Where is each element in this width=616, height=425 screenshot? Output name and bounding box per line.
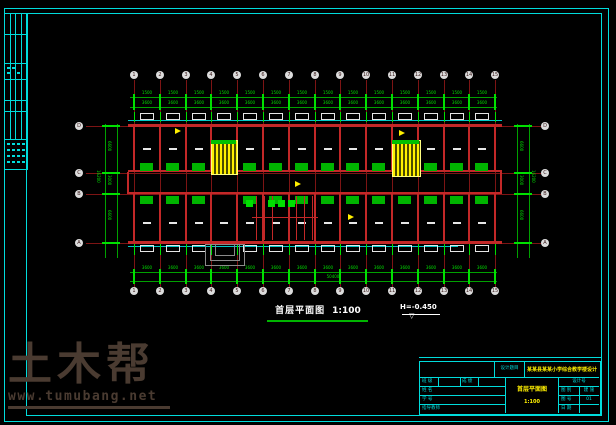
window bbox=[243, 245, 257, 252]
partition-wall bbox=[296, 196, 297, 240]
wall bbox=[443, 127, 445, 171]
staircase bbox=[392, 140, 421, 177]
toilet-fixture bbox=[268, 200, 275, 207]
wall bbox=[339, 127, 341, 171]
window-tick bbox=[315, 244, 316, 255]
dimension-tick bbox=[514, 193, 532, 195]
wall bbox=[494, 194, 496, 242]
axis-bubble: 5 bbox=[233, 287, 241, 295]
room-label bbox=[143, 222, 151, 224]
tb-project-name: 某某县某某小学综合教学楼设计 bbox=[525, 366, 599, 373]
door-fixture bbox=[321, 163, 334, 171]
dimension-text: 3600 bbox=[345, 101, 361, 105]
tb-divider bbox=[420, 386, 505, 387]
watermark-brand: 土木帮 bbox=[8, 342, 155, 388]
tb-row-label: 班 级 bbox=[422, 379, 432, 385]
dimension-text: 3600 bbox=[165, 266, 181, 270]
window-tick bbox=[160, 112, 161, 122]
wall bbox=[314, 194, 316, 242]
window bbox=[321, 245, 335, 252]
tb-right-header: 设计号 bbox=[559, 379, 599, 385]
window bbox=[192, 245, 206, 252]
window bbox=[450, 113, 464, 120]
dimension-text: 1500 bbox=[191, 91, 207, 95]
wall bbox=[185, 194, 187, 242]
caption-title: 首层平面图 bbox=[275, 306, 325, 316]
tb-row-label: 指导教师 bbox=[422, 406, 440, 412]
caption: 首层平面图1:100 bbox=[260, 303, 376, 316]
room-label bbox=[478, 148, 486, 150]
dimension-text: 3600 bbox=[397, 266, 413, 270]
level-mark-value: H=-0.450 bbox=[400, 303, 437, 311]
dimension-text: 16200 bbox=[96, 170, 100, 183]
dimension-text: 1500 bbox=[345, 91, 361, 95]
wall bbox=[494, 127, 496, 171]
window-tick bbox=[186, 112, 187, 122]
axis-bubble: 7 bbox=[285, 71, 293, 79]
dimension-tick bbox=[365, 94, 367, 110]
dimension-text: 1500 bbox=[397, 91, 413, 95]
dimension-tick bbox=[468, 269, 470, 284]
wall bbox=[133, 127, 135, 171]
axis-bubble: 13 bbox=[440, 71, 448, 79]
wall bbox=[468, 127, 470, 171]
window-tick bbox=[289, 112, 290, 122]
window-tick bbox=[469, 112, 470, 122]
window-tick bbox=[134, 112, 135, 122]
window-tick bbox=[160, 244, 161, 255]
dimension-line bbox=[529, 124, 530, 258]
dimension-tick bbox=[314, 94, 316, 110]
room-label bbox=[375, 222, 383, 224]
title-block: 设计题目 某某县某某小学综合教学楼设计 班 级 成 绩 姓 名 学 号 指导教师… bbox=[419, 357, 601, 415]
dimension-text: 3600 bbox=[474, 101, 490, 105]
dimension-text: 3600 bbox=[242, 266, 258, 270]
dimension-text: 3600 bbox=[371, 266, 387, 270]
tb-right-value: 01 bbox=[580, 397, 598, 403]
direction-arrow-icon bbox=[295, 181, 301, 187]
watermark-url: www.tumubang.net bbox=[8, 389, 157, 404]
dimension-tick bbox=[262, 94, 264, 110]
window-tick bbox=[366, 112, 367, 122]
axis-bubble: 4 bbox=[207, 287, 215, 295]
axis-bubble: 11 bbox=[388, 71, 396, 79]
dimension-text: 1500 bbox=[242, 91, 258, 95]
tb-divider bbox=[558, 404, 599, 405]
door-fixture bbox=[372, 196, 385, 204]
room-label bbox=[453, 148, 461, 150]
title-block-topline bbox=[419, 357, 601, 358]
dimension-text: 3600 bbox=[191, 101, 207, 105]
axis-bubble: 8 bbox=[311, 71, 319, 79]
door-fixture bbox=[450, 163, 463, 171]
window bbox=[398, 113, 412, 120]
room-label bbox=[143, 148, 151, 150]
tb-drawing-scale: 1:100 bbox=[506, 399, 558, 405]
window bbox=[166, 245, 180, 252]
dimension-text: 6600 bbox=[107, 210, 111, 220]
toilet-fixture bbox=[278, 200, 285, 207]
axis-bubble: B bbox=[75, 190, 83, 198]
axis-bubble: 1 bbox=[130, 287, 138, 295]
window-tick bbox=[134, 244, 135, 255]
room-label bbox=[246, 148, 254, 150]
window-tick bbox=[340, 112, 341, 122]
window bbox=[475, 113, 489, 120]
room-label bbox=[272, 222, 280, 224]
room-label bbox=[195, 222, 203, 224]
axis-bubble: 10 bbox=[362, 71, 370, 79]
dimension-tick bbox=[185, 94, 187, 110]
dimension-text: 3600 bbox=[320, 101, 336, 105]
dimension-tick bbox=[514, 172, 532, 174]
tb-row-label: 学 号 bbox=[422, 397, 432, 403]
window-tick bbox=[495, 244, 496, 255]
axis-bubble: C bbox=[541, 169, 549, 177]
staircase bbox=[211, 140, 238, 175]
window-tick bbox=[289, 244, 290, 255]
window bbox=[140, 245, 154, 252]
tb-drawing-name: 首层平面图 bbox=[506, 384, 558, 393]
dimension-tick bbox=[133, 94, 135, 110]
axis-bubble: D bbox=[541, 122, 549, 130]
axis-bubble: 15 bbox=[491, 287, 499, 295]
room-label bbox=[298, 148, 306, 150]
window bbox=[398, 245, 412, 252]
axis-bubble: B bbox=[541, 190, 549, 198]
axis-bubble: 2 bbox=[156, 287, 164, 295]
wall bbox=[288, 127, 290, 171]
window-tick bbox=[469, 244, 470, 255]
wall bbox=[262, 127, 264, 171]
wall bbox=[391, 194, 393, 242]
room-label bbox=[272, 148, 280, 150]
dimension-text: 1500 bbox=[423, 91, 439, 95]
dimension-text: 1500 bbox=[371, 91, 387, 95]
wall bbox=[133, 194, 135, 242]
door-fixture bbox=[192, 196, 205, 204]
tb-row-label: 成 绩 bbox=[462, 379, 472, 385]
tb-divider bbox=[420, 377, 599, 378]
tb-right-value: 建 施 bbox=[580, 388, 598, 394]
dimension-text: 1500 bbox=[294, 91, 310, 95]
axis-bubble: 4 bbox=[207, 71, 215, 79]
dimension-line bbox=[105, 124, 106, 258]
axis-bubble: 9 bbox=[336, 71, 344, 79]
dimension-tick bbox=[102, 242, 120, 244]
axis-bubble: 15 bbox=[491, 71, 499, 79]
dimension-tick bbox=[185, 269, 187, 284]
window-tick bbox=[263, 244, 264, 255]
axis-bubble: D bbox=[75, 122, 83, 130]
partition-wall bbox=[304, 196, 305, 240]
dimension-text: 1500 bbox=[474, 91, 490, 95]
axis-line-horizontal bbox=[86, 173, 541, 174]
dimension-tick bbox=[159, 94, 161, 110]
window-tick bbox=[392, 112, 393, 122]
axis-bubble: 3 bbox=[182, 71, 190, 79]
door-fixture bbox=[140, 163, 153, 171]
door-fixture bbox=[295, 163, 308, 171]
dimension-tick bbox=[339, 94, 341, 110]
dimension-tick bbox=[102, 193, 120, 195]
door-fixture bbox=[243, 163, 256, 171]
dimension-text: 1500 bbox=[320, 91, 336, 95]
axis-bubble: 2 bbox=[156, 71, 164, 79]
tb-divider bbox=[505, 377, 506, 413]
window-tick bbox=[418, 112, 419, 122]
dimension-text: 16200 bbox=[531, 170, 535, 183]
window bbox=[424, 113, 438, 120]
tb-divider bbox=[478, 377, 479, 386]
dimension-tick bbox=[102, 125, 120, 127]
toilet-fixture bbox=[288, 200, 295, 207]
window-tick bbox=[392, 244, 393, 255]
dimension-text: 6600 bbox=[519, 141, 523, 151]
dimension-line bbox=[117, 124, 118, 258]
wall bbox=[210, 194, 212, 242]
axis-bubble: A bbox=[541, 239, 549, 247]
window bbox=[192, 113, 206, 120]
dimension-text: 6600 bbox=[519, 210, 523, 220]
tb-right-label: 日 期 bbox=[561, 406, 571, 412]
tb-divider bbox=[420, 395, 505, 396]
dimension-text: 3600 bbox=[449, 266, 465, 270]
dimension-text: 3600 bbox=[268, 101, 284, 105]
dimension-tick bbox=[514, 125, 532, 127]
room-label bbox=[169, 148, 177, 150]
window bbox=[372, 245, 386, 252]
dimension-tick bbox=[236, 269, 238, 284]
wall bbox=[314, 127, 316, 171]
axis-bubble: 9 bbox=[336, 287, 344, 295]
tb-divider bbox=[558, 395, 599, 396]
dimension-tick bbox=[102, 172, 120, 174]
room-label bbox=[220, 222, 228, 224]
window bbox=[269, 245, 283, 252]
window-tick bbox=[211, 112, 212, 122]
dimension-tick bbox=[210, 94, 212, 110]
window bbox=[475, 245, 489, 252]
window-tick bbox=[495, 112, 496, 122]
axis-bubble: 12 bbox=[414, 71, 422, 79]
staircase-landing bbox=[392, 140, 419, 144]
axis-bubble: 11 bbox=[388, 287, 396, 295]
door-fixture bbox=[321, 196, 334, 204]
dimension-tick bbox=[468, 94, 470, 110]
wall bbox=[159, 194, 161, 242]
tb-right-label: 图 别 bbox=[561, 388, 571, 394]
window bbox=[450, 245, 464, 252]
wall bbox=[127, 172, 129, 194]
window bbox=[140, 113, 154, 120]
window bbox=[269, 113, 283, 120]
wall bbox=[468, 194, 470, 242]
dimension-tick bbox=[514, 242, 532, 244]
wall bbox=[365, 194, 367, 242]
window bbox=[321, 113, 335, 120]
dimension-tick bbox=[443, 94, 445, 110]
window-tick bbox=[418, 244, 419, 255]
cad-sheet: 1122334455667788991010111112121313141415… bbox=[0, 0, 616, 425]
dimension-text: 3600 bbox=[139, 101, 155, 105]
room-label bbox=[349, 148, 357, 150]
dimension-tick bbox=[288, 94, 290, 110]
window bbox=[243, 113, 257, 120]
room-label bbox=[246, 222, 254, 224]
tb-divider bbox=[420, 404, 505, 405]
axis-bubble: 8 bbox=[311, 287, 319, 295]
room-label bbox=[324, 148, 332, 150]
dimension-text: 3600 bbox=[371, 101, 387, 105]
tb-project-label: 设计题目 bbox=[495, 366, 524, 372]
axis-bubble: 14 bbox=[465, 71, 473, 79]
door-fixture bbox=[346, 196, 359, 204]
dimension-tick bbox=[262, 269, 264, 284]
axis-bubble: 1 bbox=[130, 71, 138, 79]
direction-arrow-icon bbox=[348, 214, 354, 220]
room-label bbox=[375, 148, 383, 150]
partition-wall bbox=[252, 217, 318, 218]
dimension-tick bbox=[236, 94, 238, 110]
direction-arrow-icon bbox=[175, 128, 181, 134]
dimension-tick bbox=[443, 269, 445, 284]
dimension-text: 3600 bbox=[474, 266, 490, 270]
dimension-tick bbox=[391, 94, 393, 110]
window bbox=[424, 245, 438, 252]
dimension-tick bbox=[417, 94, 419, 110]
direction-arrow-icon bbox=[399, 130, 405, 136]
axis-bubble: A bbox=[75, 239, 83, 247]
wall bbox=[185, 127, 187, 171]
dimension-text: 3000 bbox=[519, 175, 523, 185]
dimension-text: 3600 bbox=[191, 266, 207, 270]
door-fixture bbox=[424, 163, 437, 171]
dimension-text: 3600 bbox=[345, 266, 361, 270]
window bbox=[346, 113, 360, 120]
tb-divider bbox=[460, 377, 461, 386]
entrance-step bbox=[215, 244, 235, 256]
axis-bubble: 10 bbox=[362, 287, 370, 295]
wall bbox=[443, 194, 445, 242]
dimension-tick bbox=[494, 269, 496, 284]
wall bbox=[417, 194, 419, 242]
window bbox=[372, 113, 386, 120]
dimension-tick bbox=[494, 94, 496, 110]
tb-right-label: 图 号 bbox=[561, 397, 571, 403]
window bbox=[295, 113, 309, 120]
dimension-text: 3600 bbox=[294, 266, 310, 270]
window-tick bbox=[315, 112, 316, 122]
door-fixture bbox=[192, 163, 205, 171]
dimension-text: 3600 bbox=[139, 266, 155, 270]
window-tick bbox=[444, 112, 445, 122]
partition-wall bbox=[312, 196, 313, 240]
window-tick bbox=[366, 244, 367, 255]
window bbox=[346, 245, 360, 252]
window-tick bbox=[237, 112, 238, 122]
axis-bubble: 3 bbox=[182, 287, 190, 295]
dimension-text: 3600 bbox=[268, 266, 284, 270]
dimension-text: 1500 bbox=[139, 91, 155, 95]
tb-row-label: 姓 名 bbox=[422, 388, 432, 394]
room-label bbox=[453, 222, 461, 224]
axis-bubble: 13 bbox=[440, 287, 448, 295]
wall bbox=[339, 194, 341, 242]
window bbox=[295, 245, 309, 252]
dimension-tick bbox=[133, 269, 135, 284]
door-fixture bbox=[346, 163, 359, 171]
door-fixture bbox=[475, 163, 488, 171]
tb-divider bbox=[438, 377, 439, 386]
dimension-text: 3000 bbox=[107, 175, 111, 185]
axis-bubble: 12 bbox=[414, 287, 422, 295]
dimension-text: 1500 bbox=[165, 91, 181, 95]
room-label bbox=[427, 148, 435, 150]
door-fixture bbox=[475, 196, 488, 204]
room-label bbox=[427, 222, 435, 224]
door-fixture bbox=[372, 163, 385, 171]
wall bbox=[365, 127, 367, 171]
wall bbox=[159, 127, 161, 171]
dimension-text: 3600 bbox=[320, 266, 336, 270]
dimension-line bbox=[517, 124, 518, 258]
caption-scale: 1:100 bbox=[332, 306, 361, 316]
axis-bubble: 6 bbox=[259, 287, 267, 295]
dimension-text: 3600 bbox=[449, 101, 465, 105]
room-label bbox=[324, 222, 332, 224]
room-label bbox=[349, 222, 357, 224]
dimension-text: 1500 bbox=[449, 91, 465, 95]
door-fixture bbox=[140, 196, 153, 204]
staircase-landing bbox=[211, 140, 236, 144]
dimension-tick bbox=[417, 269, 419, 284]
door-fixture bbox=[166, 196, 179, 204]
dimension-text: 3600 bbox=[216, 266, 232, 270]
dimension-text: 3600 bbox=[423, 266, 439, 270]
dimension-text: 1500 bbox=[216, 91, 232, 95]
dimension-text: 6600 bbox=[107, 141, 111, 151]
toilet-fixture bbox=[246, 200, 253, 207]
dimension-text: 1500 bbox=[268, 91, 284, 95]
tb-divider bbox=[558, 386, 599, 387]
axis-bubble: 5 bbox=[233, 71, 241, 79]
watermark-underline bbox=[8, 406, 170, 409]
axis-bubble: C bbox=[75, 169, 83, 177]
room-label bbox=[195, 148, 203, 150]
room-label bbox=[169, 222, 177, 224]
dimension-text: 3600 bbox=[242, 101, 258, 105]
dimension-text: 50400 bbox=[283, 275, 383, 279]
wall bbox=[236, 194, 238, 242]
door-fixture bbox=[269, 163, 282, 171]
caption-underline bbox=[267, 320, 368, 322]
door-fixture bbox=[398, 196, 411, 204]
axis-bubble: 6 bbox=[259, 71, 267, 79]
room-label bbox=[478, 222, 486, 224]
partition-wall bbox=[256, 196, 257, 240]
window-tick bbox=[186, 244, 187, 255]
window-tick bbox=[263, 112, 264, 122]
dimension-text: 3600 bbox=[165, 101, 181, 105]
dimension-text: 3600 bbox=[294, 101, 310, 105]
partition-wall bbox=[264, 196, 265, 240]
axis-bubble: 7 bbox=[285, 287, 293, 295]
dimension-text: 3600 bbox=[423, 101, 439, 105]
room-label bbox=[401, 222, 409, 224]
door-fixture bbox=[450, 196, 463, 204]
door-fixture bbox=[166, 163, 179, 171]
